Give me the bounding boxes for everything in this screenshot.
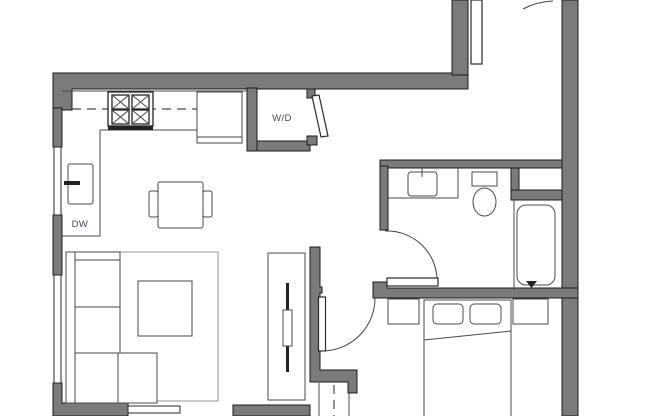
bathroom-sink	[408, 168, 437, 196]
toilet	[472, 172, 497, 216]
toilet-tank	[472, 172, 497, 186]
nightstand-right	[513, 299, 548, 324]
bathroom-top-wall	[380, 160, 562, 168]
window-bottom	[128, 406, 180, 413]
dining-chair-right	[203, 191, 212, 217]
entry-door-leaf	[471, 0, 482, 64]
bathroom-door-leaf	[387, 278, 438, 286]
bed	[424, 300, 511, 416]
linen-niche-bottom-wall	[511, 190, 562, 200]
window-left-upper	[54, 147, 61, 215]
stove	[108, 92, 153, 130]
pillow-right	[470, 304, 501, 324]
bathroom-door-swing-arc	[385, 231, 437, 278]
dishwasher-handle	[64, 181, 80, 185]
wd-closet-left-wall	[247, 88, 257, 151]
right-wall	[562, 0, 578, 416]
left-wall-middle	[53, 215, 62, 275]
tv-console	[268, 253, 305, 400]
wd-closet-bottom-wall	[257, 141, 310, 151]
bedroom-door-swing-arc	[322, 297, 375, 351]
stove-front-band	[108, 126, 153, 130]
stove-burner	[112, 110, 129, 124]
stove-burner	[132, 95, 149, 109]
bedroom-closet	[319, 383, 349, 416]
pillow-left	[433, 304, 463, 324]
living-room-layer	[66, 252, 305, 403]
coffee-table	[138, 281, 192, 336]
stove-burner	[112, 95, 129, 109]
tv-wall	[310, 247, 357, 393]
dining-chair-left	[149, 191, 158, 217]
dining-table-set	[149, 182, 212, 228]
refrigerator	[197, 92, 242, 143]
wd-closet-door-leaf	[312, 95, 328, 137]
bottom-wall-right-segment	[233, 405, 310, 416]
tv-stand-base	[283, 310, 292, 346]
nightstand-left	[388, 299, 419, 324]
bathtub	[517, 205, 555, 288]
kitchen-layer	[62, 91, 247, 236]
stove-burner	[132, 110, 149, 124]
bathroom-layer	[388, 168, 555, 290]
dishwasher-label: DW	[72, 219, 89, 230]
wd-door-jamb-bottom	[307, 136, 317, 145]
entry-door-swing-arc	[523, 1, 553, 9]
bedroom-layer	[319, 299, 548, 416]
window-left-lower	[54, 275, 61, 383]
dining-table	[158, 182, 203, 228]
bedroom-door-leaf	[319, 297, 326, 351]
bathroom-left-wall	[380, 166, 388, 230]
toilet-bowl	[473, 188, 496, 216]
entry-wall-post	[452, 0, 468, 75]
washer-dryer-label: W/D	[272, 113, 292, 124]
left-wall-upper	[53, 108, 62, 147]
floor-plan: W/D DW	[0, 0, 652, 416]
